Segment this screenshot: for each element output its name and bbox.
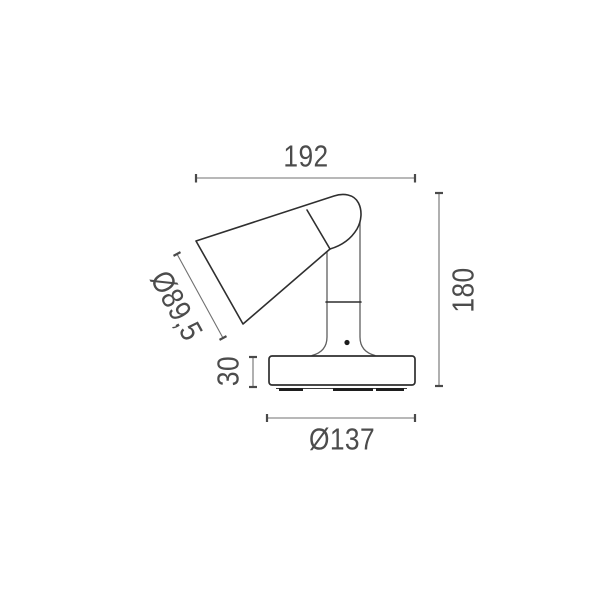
dim-tick <box>174 252 181 256</box>
stem-screw-dot <box>344 340 349 345</box>
dimension-overall-width: 192 <box>196 140 415 183</box>
dimension-base-height: 30 <box>212 356 257 387</box>
dimension-label-width: 192 <box>283 140 328 174</box>
technical-drawing-page: 192 180 Ø89,5 30 <box>0 0 600 600</box>
dimension-base-diameter: Ø137 <box>267 414 415 457</box>
shade-outline <box>196 194 361 324</box>
lamp-shade <box>196 194 361 324</box>
stem-right-edge <box>360 221 375 356</box>
dimension-label-shade-diameter: Ø89,5 <box>143 265 209 346</box>
lamp-dimension-drawing: 192 180 Ø89,5 30 <box>0 0 600 600</box>
dim-tick <box>220 336 227 340</box>
lamp-base <box>269 356 415 390</box>
dimension-overall-height: 180 <box>435 193 481 386</box>
dimension-label-base-height: 30 <box>212 356 246 386</box>
base-outline <box>269 356 415 385</box>
dimension-label-height: 180 <box>447 267 481 312</box>
dimension-label-base-diameter: Ø137 <box>309 423 375 457</box>
stem-left-edge <box>312 251 327 356</box>
